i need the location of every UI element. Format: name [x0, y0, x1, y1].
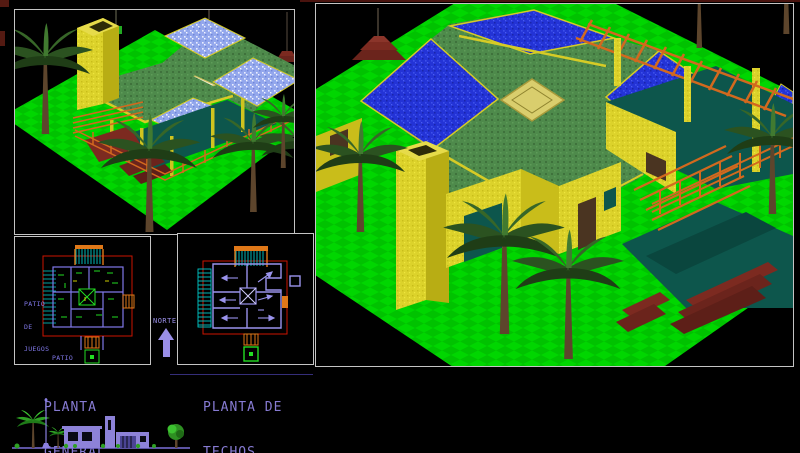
3d-overview-scene — [15, 10, 294, 234]
cad-model-space: PATIO DE JUEGOS PATIO DE FORMACION NORTE — [0, 0, 800, 453]
cropped-beam-line — [300, 0, 800, 2]
caption-planta-techos: PLANTA DE TECHOS — [203, 370, 282, 453]
elevation-tree-right — [168, 424, 185, 448]
skylight — [240, 288, 256, 304]
north-label: NORTE — [153, 317, 177, 325]
north-arrow-icon — [158, 328, 174, 340]
detail-squares — [282, 276, 300, 308]
patio-juegos-label: PATIO DE JUEGOS — [24, 286, 49, 365]
tower — [396, 141, 449, 310]
north-arrow-stem — [163, 340, 170, 357]
cropped-entity — [0, 31, 5, 46]
viewport-plan-general[interactable]: PATIO DE JUEGOS PATIO DE FORMACION — [14, 236, 151, 365]
skylight — [79, 289, 95, 305]
viewport-plan-techos[interactable] — [177, 233, 314, 365]
elevation-buildings — [62, 416, 149, 448]
elevation-drawing — [8, 396, 194, 453]
tower — [77, 18, 119, 110]
viewport-3d-detail[interactable] — [315, 3, 794, 367]
pergola-hatch-left — [198, 269, 211, 327]
3d-detail-scene — [316, 4, 793, 366]
flag-pole-planter — [352, 8, 406, 60]
patio-formacion-label: PATIO DE FORMACION — [52, 340, 90, 365]
plan-techos-drawing — [178, 234, 313, 364]
elevation-trees-left — [15, 410, 68, 449]
pergola-top — [75, 245, 103, 265]
entry-stub — [244, 334, 258, 361]
cropped-entity — [0, 0, 9, 7]
pergola-right — [123, 295, 134, 308]
viewport-3d-overview[interactable] — [14, 9, 295, 235]
